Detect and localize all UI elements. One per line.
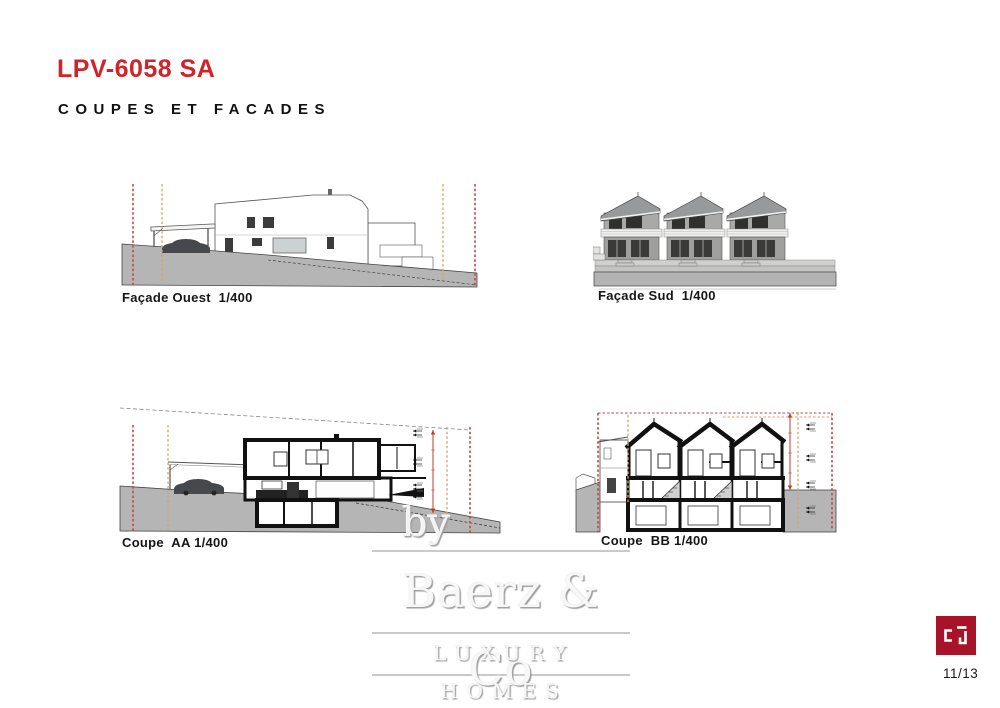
facade-ouest-elevation xyxy=(118,176,486,296)
building-section xyxy=(626,418,785,530)
car-icon xyxy=(162,239,210,253)
height-dimension-line xyxy=(788,413,792,490)
page-subtitle: COUPES ET FACADES xyxy=(58,101,331,118)
upper-unit-2 xyxy=(678,418,734,478)
coupe-bb-section xyxy=(573,398,838,538)
roof-vent xyxy=(328,189,332,195)
facade-sud-elevation xyxy=(593,183,838,293)
drawing-facade-ouest xyxy=(118,176,486,296)
watermark-baerz: Baerz & Co LUXURY HOMES xyxy=(372,550,630,676)
annex-building xyxy=(598,437,628,502)
label-facade-sud: Façade Sud 1/400 xyxy=(598,288,716,303)
right-terrain xyxy=(783,490,836,532)
car-icon xyxy=(174,479,224,495)
label-coupe-aa: Coupe AA 1/400 xyxy=(122,535,228,550)
upper-unit-1 xyxy=(626,418,682,478)
drawing-facade-sud xyxy=(593,183,838,293)
upper-unit-3 xyxy=(730,418,785,478)
large-window xyxy=(273,238,306,253)
page-title: LPV-6058 SA xyxy=(57,55,215,84)
watermark-by: by xyxy=(402,500,450,546)
watermark-name: Baerz & Co xyxy=(372,552,630,632)
drawing-coupe-bb xyxy=(573,398,838,538)
label-facade-ouest: Façade Ouest 1/400 xyxy=(122,290,253,305)
cp-logo-icon xyxy=(936,616,976,656)
watermark-tagline: LUXURY HOMES xyxy=(372,634,630,674)
townhouse-unit xyxy=(601,192,662,260)
townhouse-unit xyxy=(727,192,788,260)
townhouse-unit xyxy=(664,192,725,260)
left-terrain xyxy=(576,474,600,532)
page-number: 11/13 xyxy=(943,666,978,681)
label-coupe-bb: Coupe BB 1/400 xyxy=(601,533,708,548)
natural-terrain-line xyxy=(120,408,470,430)
townhouse-row xyxy=(601,192,788,260)
plan-sheet: LPV-6058 SA COUPES ET FACADES xyxy=(0,0,1000,708)
